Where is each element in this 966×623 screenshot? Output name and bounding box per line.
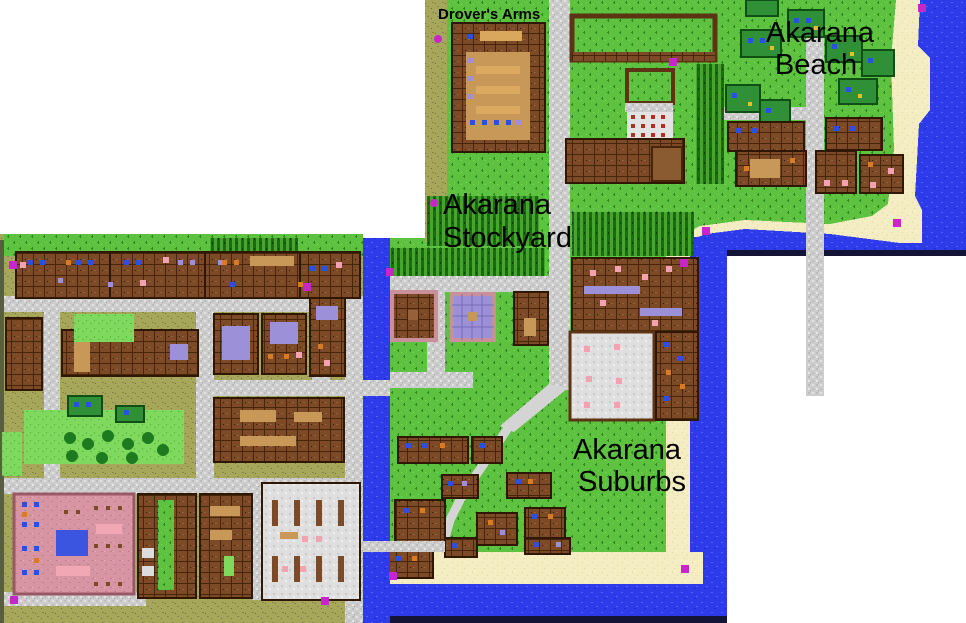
map-marker — [386, 268, 394, 276]
river — [363, 238, 390, 623]
map-marker — [10, 596, 18, 604]
ocean-south — [387, 584, 727, 620]
city-terrace-row — [16, 252, 360, 298]
map-marker — [430, 199, 438, 207]
building-barn — [566, 139, 684, 183]
city-garden — [74, 314, 134, 342]
pink-palace-complex — [14, 494, 134, 594]
livestock-pen-cobbled — [570, 332, 654, 420]
city-west-edge — [0, 240, 4, 623]
map-edge-line-south — [363, 616, 727, 623]
livestock-pen-stable — [656, 332, 698, 420]
label-akarana-stockyard-line1: Akarana — [443, 189, 552, 221]
map-marker — [434, 35, 442, 43]
stockyard-fence-yard — [572, 16, 715, 61]
garden-pen-lavender — [452, 294, 494, 340]
map-marker — [389, 572, 397, 580]
map-canvas: Drover's Arms Akarana Beach Akarana Stoc… — [0, 0, 966, 623]
river-bridge-north — [196, 380, 390, 396]
building-farmhouse — [514, 292, 548, 345]
city-buildings-lower — [214, 398, 344, 462]
map-marker — [9, 261, 17, 269]
map-marker — [702, 227, 710, 235]
map-marker — [918, 4, 926, 12]
map-marker — [893, 219, 901, 227]
livestock-pen-main — [572, 258, 698, 332]
garden-pen-brown — [392, 292, 436, 340]
map-marker — [303, 283, 311, 291]
map-marker — [321, 597, 329, 605]
label-akarana-suburbs-line1: Akarana — [573, 434, 682, 466]
guildhall-block — [200, 494, 252, 598]
market-hall — [262, 483, 360, 600]
label-akarana-suburbs-line2: Suburbs — [578, 466, 686, 498]
building-drovers-arms-tavern — [452, 23, 545, 152]
label-akarana-beach-line2: Beach — [775, 49, 857, 81]
coastal-map-section — [363, 0, 966, 623]
map-marker — [669, 58, 677, 66]
label-drovers-arms: Drover's Arms — [438, 6, 540, 23]
game-world-map: Drover's Arms Akarana Beach Akarana Stoc… — [0, 0, 966, 623]
map-marker — [681, 565, 689, 573]
blank-area-east — [727, 256, 966, 623]
courtyard-building — [138, 494, 196, 598]
map-edge-line-east — [727, 250, 966, 256]
city-map-section — [0, 234, 445, 623]
label-akarana-stockyard-line2: Stockyard — [443, 222, 572, 254]
palace-pool — [56, 530, 88, 556]
label-akarana-beach-line1: Akarana — [766, 17, 875, 49]
map-marker — [680, 259, 688, 267]
stockyard-small-pen — [625, 70, 673, 140]
